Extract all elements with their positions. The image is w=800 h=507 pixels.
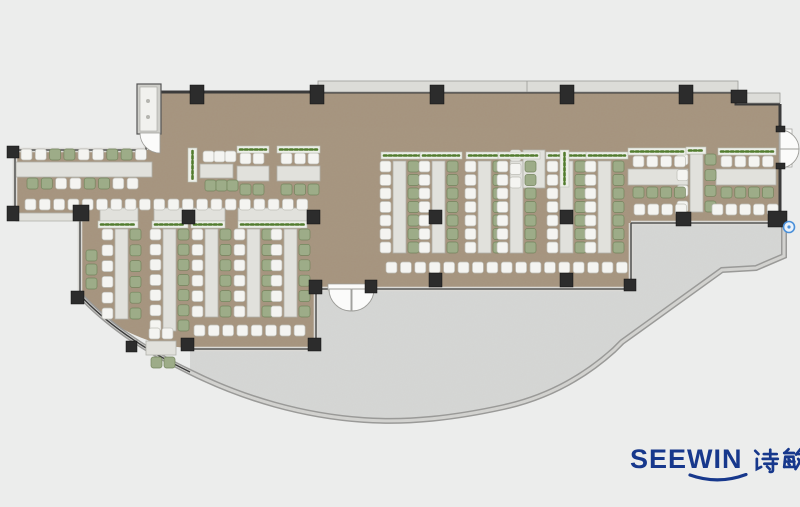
chair (447, 175, 458, 186)
column (182, 210, 195, 224)
table (432, 161, 445, 253)
chair (192, 229, 203, 240)
chair (544, 262, 555, 273)
chair (573, 262, 584, 273)
column (560, 210, 573, 224)
chair (497, 202, 508, 213)
chair (102, 308, 113, 319)
chair (216, 180, 227, 191)
chair (735, 187, 746, 198)
chair (308, 153, 319, 164)
chair (465, 188, 476, 199)
chair (150, 275, 161, 286)
chair (616, 262, 627, 273)
chair (299, 275, 310, 286)
chair (525, 188, 536, 199)
chair (721, 156, 732, 167)
chair (225, 199, 236, 210)
chair (84, 178, 95, 189)
chair (308, 184, 319, 195)
column (126, 341, 137, 352)
chair (194, 325, 205, 336)
chair (203, 151, 214, 162)
chair (674, 187, 685, 198)
chair (465, 242, 476, 253)
table (393, 161, 406, 253)
column (71, 291, 84, 304)
chair (740, 204, 751, 215)
chair (408, 175, 419, 186)
chair (268, 199, 279, 210)
chair (281, 184, 292, 195)
chair (234, 244, 245, 255)
chair (497, 242, 508, 253)
chair (525, 229, 536, 240)
chair (712, 204, 723, 215)
chair (271, 306, 282, 317)
chair (234, 229, 245, 240)
column (560, 85, 574, 104)
chair (647, 156, 658, 167)
chair (705, 185, 716, 196)
floor-plan-drawing (0, 0, 800, 507)
chair (280, 325, 291, 336)
column (624, 279, 636, 291)
chair (408, 161, 419, 172)
chair (525, 215, 536, 226)
chair (585, 229, 596, 240)
chair (547, 215, 558, 226)
chair (299, 291, 310, 302)
chair (419, 242, 430, 253)
chair (271, 229, 282, 240)
chair (585, 175, 596, 186)
chair (447, 215, 458, 226)
chair (575, 188, 586, 199)
chair (35, 149, 46, 160)
chair (465, 161, 476, 172)
column (310, 85, 324, 104)
chair (54, 199, 65, 210)
chair (299, 260, 310, 271)
chair (419, 175, 430, 186)
chair (585, 202, 596, 213)
column (190, 85, 204, 104)
chair (408, 229, 419, 240)
chair (415, 262, 426, 273)
chair (234, 260, 245, 271)
chair (472, 262, 483, 273)
chair (102, 292, 113, 303)
chair (408, 215, 419, 226)
cn-stroke (788, 464, 789, 465)
chair (50, 149, 61, 160)
chair (234, 275, 245, 286)
chair (613, 161, 624, 172)
chair (530, 262, 541, 273)
chair (585, 161, 596, 172)
chair (749, 156, 760, 167)
chair (70, 178, 81, 189)
chair (154, 199, 165, 210)
chair (253, 153, 264, 164)
chair (634, 204, 645, 215)
column (7, 146, 19, 158)
chair (762, 187, 773, 198)
chair (380, 229, 391, 240)
floor-plan-stage: SEEWIN (0, 0, 800, 507)
chair (547, 242, 558, 253)
chair (585, 242, 596, 253)
chair (192, 275, 203, 286)
chair (86, 250, 97, 261)
column (731, 90, 747, 103)
chair (299, 306, 310, 317)
chair (662, 204, 673, 215)
chair (150, 244, 161, 255)
chair (295, 184, 306, 195)
chair (447, 161, 458, 172)
chair (178, 259, 189, 270)
column (307, 210, 320, 224)
chair (419, 161, 430, 172)
chair (39, 199, 50, 210)
chair (205, 180, 216, 191)
chair (130, 308, 141, 319)
column (679, 85, 693, 104)
chair (225, 151, 236, 162)
chair (197, 199, 208, 210)
chair (178, 275, 189, 286)
table (146, 341, 176, 355)
table (277, 166, 320, 181)
column (309, 280, 322, 294)
chair (408, 242, 419, 253)
chair (497, 229, 508, 240)
chair (585, 188, 596, 199)
smile-arc (690, 475, 746, 480)
table (284, 229, 297, 317)
chair (299, 229, 310, 240)
chair (547, 202, 558, 213)
chair (444, 262, 455, 273)
chair (150, 290, 161, 301)
brand-wordmark: SEEWIN (630, 446, 743, 473)
table (200, 164, 233, 178)
table (478, 161, 491, 253)
chair (192, 291, 203, 302)
table (598, 161, 611, 253)
chair (380, 175, 391, 186)
chair (237, 325, 248, 336)
chair (294, 325, 305, 336)
chair (613, 215, 624, 226)
chair (465, 175, 476, 186)
chair (661, 187, 672, 198)
chair (93, 149, 104, 160)
chair (121, 149, 132, 160)
brand-logo: SEEWIN (630, 446, 800, 474)
chair (726, 204, 737, 215)
chair (182, 199, 193, 210)
chair (447, 202, 458, 213)
chair (749, 187, 760, 198)
rotation-handle-icon (784, 222, 795, 233)
chair (130, 276, 141, 287)
chair (162, 328, 173, 339)
chair (458, 262, 469, 273)
brand-cn-name (752, 447, 800, 474)
chair (575, 175, 586, 186)
chair (240, 184, 251, 195)
chair (192, 244, 203, 255)
chair (525, 202, 536, 213)
chair (585, 215, 596, 226)
chair (102, 276, 113, 287)
chair (602, 262, 613, 273)
chair (130, 261, 141, 272)
table (163, 229, 176, 331)
table (247, 229, 260, 317)
chair (220, 229, 231, 240)
chair (220, 291, 231, 302)
chair (380, 188, 391, 199)
chair (575, 202, 586, 213)
column (776, 126, 785, 132)
chair (127, 178, 138, 189)
chair (613, 229, 624, 240)
chair (192, 260, 203, 271)
chair (178, 229, 189, 240)
chair (113, 178, 124, 189)
chair (149, 328, 160, 339)
chair (753, 204, 764, 215)
chair (429, 262, 440, 273)
cn-stroke (756, 459, 760, 469)
chair (130, 229, 141, 240)
chair (211, 199, 222, 210)
chair (240, 199, 251, 210)
chair (613, 242, 624, 253)
chair (102, 245, 113, 256)
chair (497, 161, 508, 172)
chair (510, 177, 521, 188)
chair (220, 275, 231, 286)
chair (21, 149, 32, 160)
chair (253, 184, 264, 195)
chair (99, 178, 110, 189)
chair (419, 188, 430, 199)
chair (227, 180, 238, 191)
cn-stroke (755, 451, 758, 454)
chair (465, 202, 476, 213)
chair (164, 357, 175, 368)
chair (419, 202, 430, 213)
chair (525, 161, 536, 172)
chair (447, 229, 458, 240)
chair (130, 292, 141, 303)
chair (178, 305, 189, 316)
chair (465, 229, 476, 240)
chair (547, 229, 558, 240)
chair (234, 306, 245, 317)
chair (613, 188, 624, 199)
chair (168, 199, 179, 210)
chair (559, 262, 570, 273)
table (205, 229, 218, 317)
chair (547, 175, 558, 186)
chair (150, 305, 161, 316)
chair (78, 149, 89, 160)
column (7, 206, 19, 221)
chair (223, 325, 234, 336)
chair (762, 156, 773, 167)
chair (271, 275, 282, 286)
chair (525, 175, 536, 186)
chair (447, 188, 458, 199)
chair (107, 149, 118, 160)
chair (400, 262, 411, 273)
chair (220, 244, 231, 255)
chair (575, 161, 586, 172)
column (365, 280, 377, 293)
chair (271, 291, 282, 302)
chair (525, 242, 536, 253)
cn-char-min (784, 449, 800, 469)
chair (465, 215, 476, 226)
cn-char-shi (755, 450, 778, 472)
chair (130, 245, 141, 256)
chair (220, 306, 231, 317)
chair (97, 199, 108, 210)
chair (151, 357, 162, 368)
chair (721, 187, 732, 198)
chair (297, 199, 308, 210)
chair (299, 244, 310, 255)
chair (240, 153, 251, 164)
column (181, 338, 194, 351)
table (115, 229, 128, 319)
chair (178, 290, 189, 301)
cn-stroke (767, 466, 770, 469)
chair (408, 188, 419, 199)
chair (86, 278, 97, 289)
chair (735, 156, 746, 167)
chair (419, 215, 430, 226)
chair (251, 325, 262, 336)
chair (102, 229, 113, 240)
chair (135, 149, 146, 160)
chair (282, 199, 293, 210)
table (16, 162, 152, 177)
chair (281, 153, 292, 164)
chair (386, 262, 397, 273)
chair (150, 229, 161, 240)
chair (254, 199, 265, 210)
chair (501, 262, 512, 273)
chair (705, 154, 716, 165)
chair (575, 229, 586, 240)
column (676, 212, 691, 226)
chair (86, 264, 97, 275)
chair (648, 204, 659, 215)
chair (234, 291, 245, 302)
column (776, 163, 785, 169)
chair (705, 170, 716, 181)
table (690, 154, 703, 212)
column (73, 205, 89, 221)
chair (111, 199, 122, 210)
chair (487, 262, 498, 273)
chair (613, 202, 624, 213)
column (429, 210, 442, 224)
chair (588, 262, 599, 273)
column (429, 273, 442, 287)
column (308, 338, 321, 351)
chair (380, 215, 391, 226)
chair (27, 178, 38, 189)
column (560, 273, 573, 287)
chair (547, 161, 558, 172)
chair (56, 178, 67, 189)
chair (510, 164, 521, 175)
chair (419, 229, 430, 240)
chair (271, 244, 282, 255)
chair (613, 175, 624, 186)
chair (647, 187, 658, 198)
chair (516, 262, 527, 273)
chair (25, 199, 36, 210)
table (237, 166, 269, 181)
chair (633, 187, 644, 198)
chair (178, 320, 189, 331)
chair (208, 325, 219, 336)
chair (192, 306, 203, 317)
chair (408, 202, 419, 213)
chair (102, 261, 113, 272)
chair (139, 199, 150, 210)
chair (220, 260, 231, 271)
chair (575, 215, 586, 226)
chair (497, 175, 508, 186)
chair (661, 156, 672, 167)
chair (380, 242, 391, 253)
chair (214, 151, 225, 162)
chair (497, 215, 508, 226)
chair (41, 178, 52, 189)
chair (380, 202, 391, 213)
chair (150, 259, 161, 270)
chair (178, 244, 189, 255)
chair (125, 199, 136, 210)
cn-stroke (788, 459, 789, 460)
chair (674, 156, 685, 167)
chair (64, 149, 75, 160)
column (430, 85, 444, 104)
brand-smile-icon (687, 473, 749, 485)
chair (447, 242, 458, 253)
chair (633, 156, 644, 167)
chair (547, 188, 558, 199)
chair (575, 242, 586, 253)
chair (266, 325, 277, 336)
chair (677, 170, 688, 181)
chair (497, 188, 508, 199)
chair (295, 153, 306, 164)
chair (271, 260, 282, 271)
table (716, 169, 776, 185)
chair (380, 161, 391, 172)
